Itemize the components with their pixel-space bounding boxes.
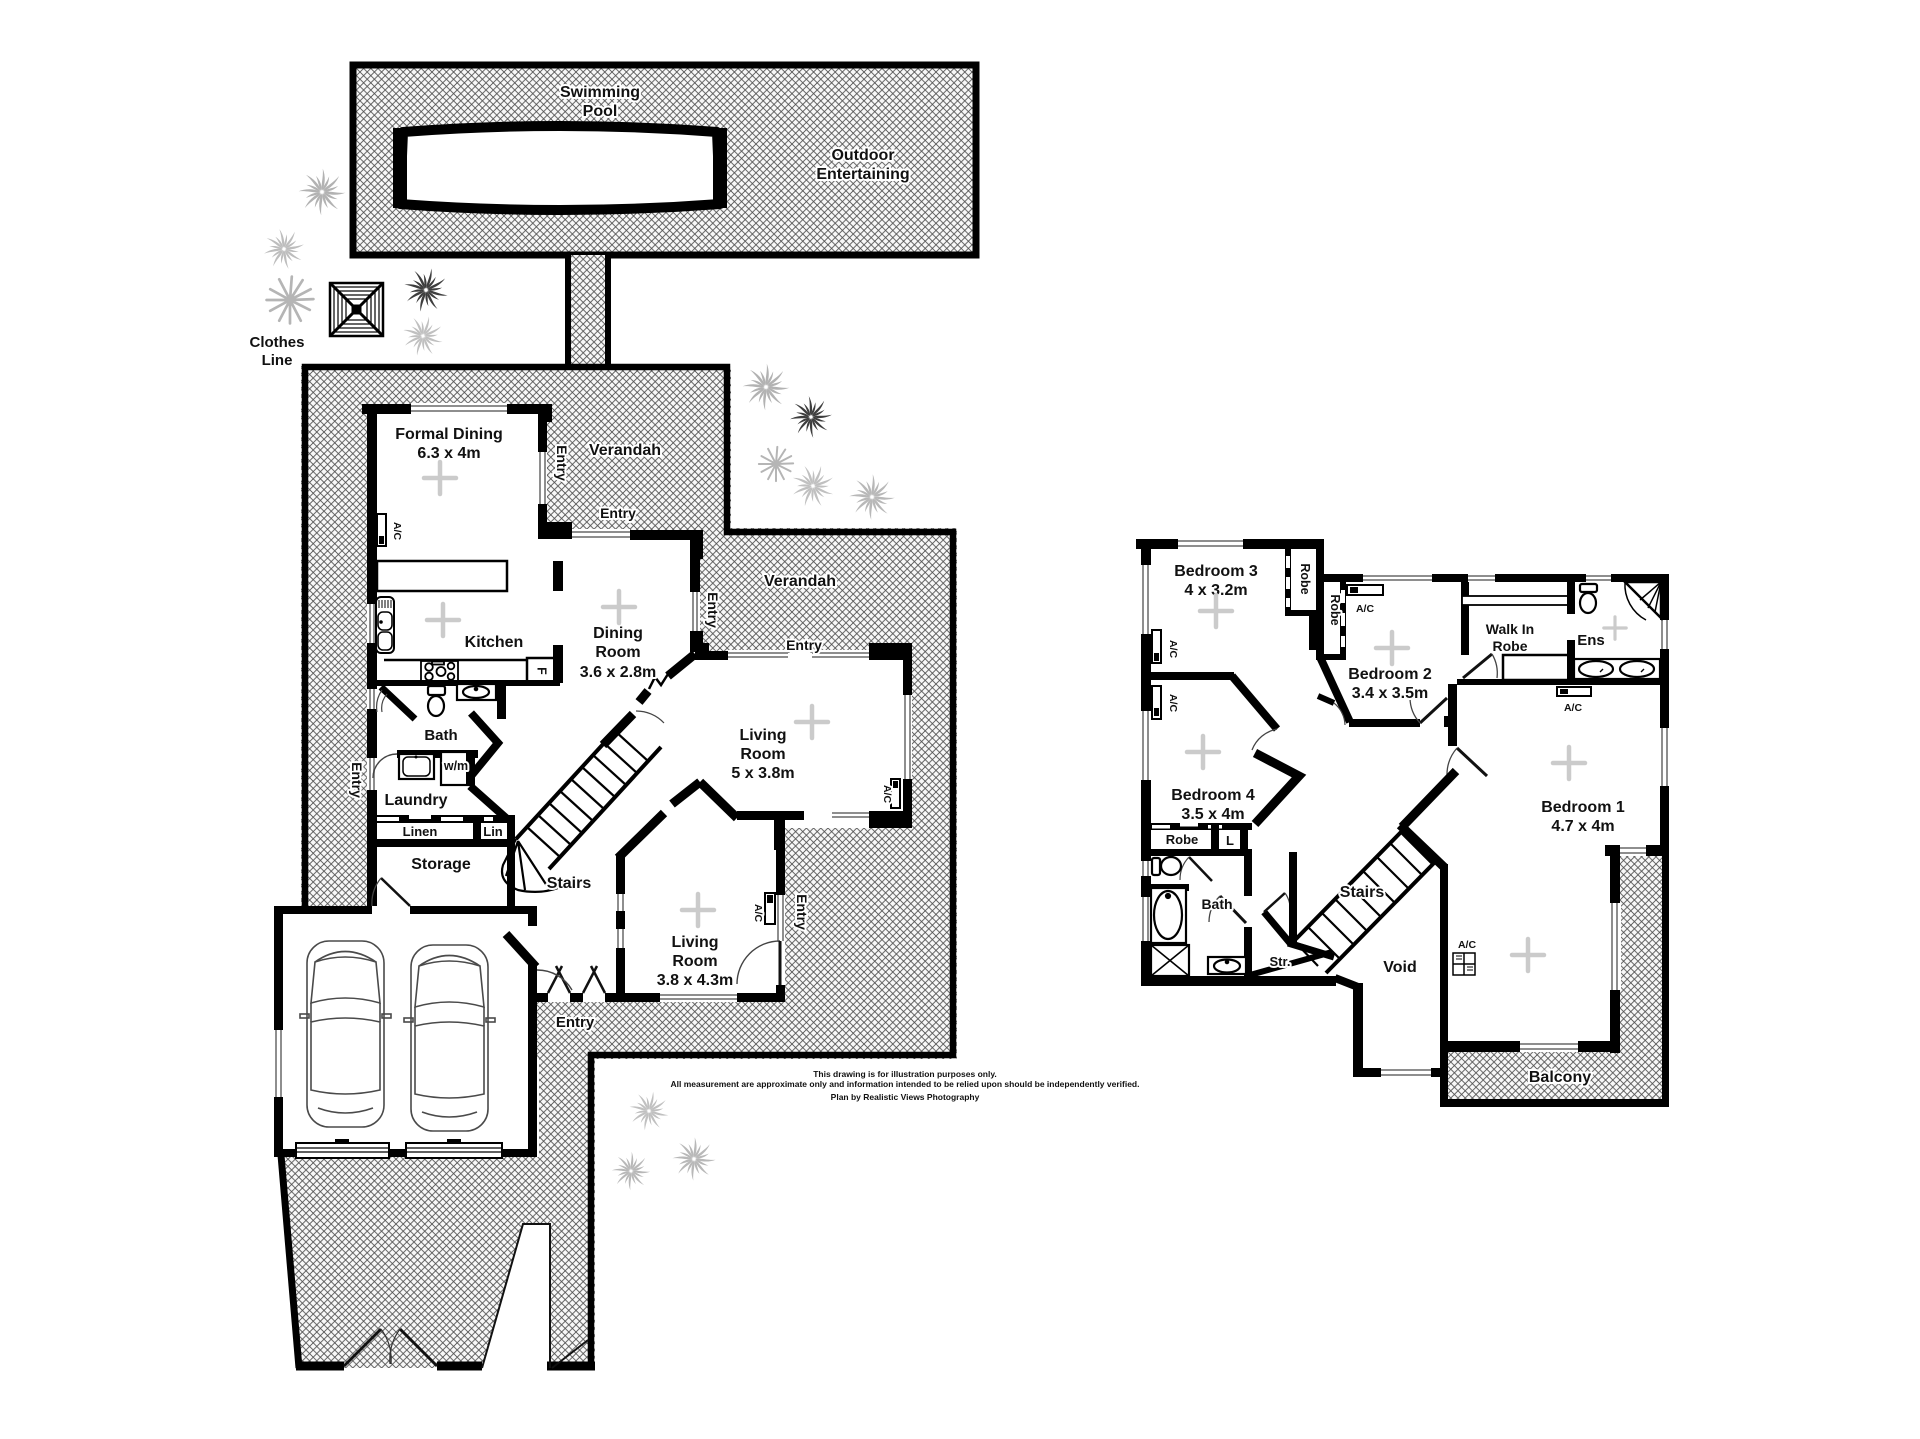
svg-text:Bedroom 3: Bedroom 3 <box>1174 563 1258 580</box>
svg-text:3.8 x 4.3m: 3.8 x 4.3m <box>657 972 734 989</box>
svg-text:A/C: A/C <box>1167 694 1179 713</box>
svg-text:6.3 x 4m: 6.3 x 4m <box>417 445 480 462</box>
svg-text:3.6 x 2.8m: 3.6 x 2.8m <box>580 664 657 681</box>
svg-text:Verandah: Verandah <box>589 442 661 459</box>
svg-text:All measurement are approximat: All measurement are approximate only and… <box>671 1079 1140 1089</box>
svg-text:Entertaining: Entertaining <box>816 166 909 183</box>
svg-text:Bedroom 1: Bedroom 1 <box>1541 799 1625 816</box>
svg-text:Plan by Realistic Views Photog: Plan by Realistic Views Photography <box>831 1092 980 1102</box>
svg-text:4.7 x 4m: 4.7 x 4m <box>1551 818 1614 835</box>
svg-text:3.4 x 3.5m: 3.4 x 3.5m <box>1352 685 1429 702</box>
svg-text:Linen: Linen <box>403 824 438 839</box>
svg-text:Room: Room <box>740 746 785 763</box>
svg-text:Swimming: Swimming <box>560 84 640 101</box>
svg-text:Bedroom 4: Bedroom 4 <box>1171 787 1255 804</box>
svg-text:Dining: Dining <box>593 625 643 642</box>
svg-text:Clothes: Clothes <box>249 334 304 351</box>
svg-text:Robe: Robe <box>1493 638 1528 654</box>
svg-text:Entry: Entry <box>556 1014 595 1031</box>
svg-text:Entry: Entry <box>349 762 365 798</box>
svg-text:Void: Void <box>1383 959 1416 976</box>
svg-text:Bath: Bath <box>1201 896 1232 912</box>
svg-text:Robe: Robe <box>1166 832 1199 847</box>
svg-text:Room: Room <box>672 953 717 970</box>
svg-text:Entry: Entry <box>786 637 822 653</box>
svg-text:A/C: A/C <box>391 522 403 541</box>
svg-text:Outdoor: Outdoor <box>831 147 894 164</box>
svg-text:3.5 x 4m: 3.5 x 4m <box>1181 806 1244 823</box>
svg-text:Laundry: Laundry <box>384 792 447 809</box>
svg-text:Storage: Storage <box>411 856 471 873</box>
svg-text:Bedroom 2: Bedroom 2 <box>1348 666 1432 683</box>
svg-text:A/C: A/C <box>1564 702 1583 714</box>
svg-text:Bath: Bath <box>424 727 457 744</box>
svg-text:A/C: A/C <box>1167 640 1179 659</box>
svg-text:Line: Line <box>262 352 293 369</box>
svg-text:Entry: Entry <box>554 445 570 481</box>
svg-text:A/C: A/C <box>1356 603 1375 615</box>
svg-text:Lin: Lin <box>483 824 503 839</box>
svg-text:Entry: Entry <box>600 505 636 521</box>
svg-text:Robe: Robe <box>1298 563 1312 594</box>
svg-text:Stairs: Stairs <box>1340 884 1385 901</box>
svg-text:Verandah: Verandah <box>764 573 836 590</box>
svg-text:A/C: A/C <box>881 785 893 804</box>
svg-text:Pool: Pool <box>583 103 618 120</box>
svg-text:L: L <box>1226 833 1234 848</box>
svg-text:Entry: Entry <box>794 894 810 930</box>
svg-text:Living: Living <box>739 727 786 744</box>
svg-text:w/m: w/m <box>443 759 468 773</box>
svg-text:5 x 3.8m: 5 x 3.8m <box>731 765 794 782</box>
svg-text:Walk In: Walk In <box>1486 621 1535 637</box>
svg-text:Balcony: Balcony <box>1529 1069 1591 1086</box>
svg-text:Kitchen: Kitchen <box>465 634 524 651</box>
svg-text:Robe: Robe <box>1328 594 1342 625</box>
svg-text:A/C: A/C <box>752 904 764 923</box>
svg-text:A/C: A/C <box>1458 939 1477 951</box>
svg-text:F: F <box>535 667 549 675</box>
svg-text:Ens: Ens <box>1577 632 1605 649</box>
svg-text:Str.: Str. <box>1270 954 1291 969</box>
svg-text:This drawing is for illustrati: This drawing is for illustration purpose… <box>813 1069 997 1079</box>
svg-text:Stairs: Stairs <box>547 875 592 892</box>
svg-text:Living: Living <box>671 934 718 951</box>
svg-text:Formal Dining: Formal Dining <box>395 426 503 443</box>
svg-text:Entry: Entry <box>705 592 721 628</box>
svg-text:Room: Room <box>595 644 640 661</box>
